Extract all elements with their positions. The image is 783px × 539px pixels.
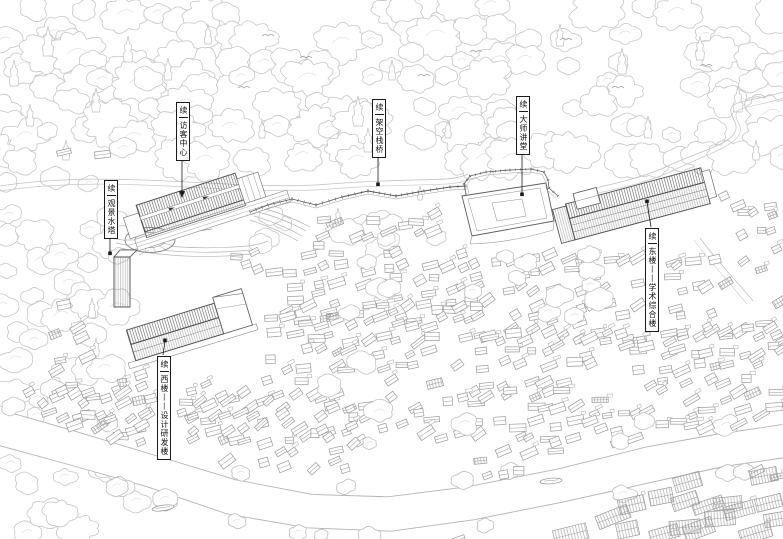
tower-shaft [114,257,130,307]
village-house [720,396,731,405]
line-art [76,379,82,382]
village-house [754,493,783,512]
village-house [766,227,776,236]
river-water [0,411,783,531]
railing-tick [465,194,468,195]
railing-tick [385,192,386,195]
tree-canopy [0,263,17,278]
line-art [218,421,222,425]
village-house [664,270,684,280]
village-house [550,423,561,432]
village-house [697,344,716,358]
village-house [631,279,645,288]
line-art [279,324,284,327]
village-house [754,261,771,274]
line-art [321,276,328,280]
line-art [564,324,571,330]
line-art [697,417,704,421]
village-house [218,453,236,469]
village-house [185,383,199,396]
railing-tick [342,195,343,198]
village-house [479,382,494,389]
village-house [509,424,526,432]
leader-dot [520,193,524,197]
line-art [307,375,312,378]
line-art [470,329,476,333]
village-house [385,264,394,272]
village-house [744,387,762,400]
village-house [367,216,380,224]
line-art [228,407,234,411]
village-house [694,358,706,368]
tree-canopy [398,42,423,62]
line-art [201,391,206,396]
village-house [565,266,579,272]
line-art [728,322,733,326]
village-house [414,228,424,237]
tree-canopy [557,57,580,74]
village-house [458,262,469,273]
village-house [685,253,705,265]
village-house [135,381,148,392]
tree-canopy [78,175,98,192]
line-art [143,364,150,369]
village-house [266,268,283,277]
village-house [315,343,327,354]
line-art [679,270,684,273]
village-house [556,324,575,340]
line-art [750,372,756,375]
tree-canopy [563,100,583,117]
line-art [451,535,466,539]
village-house [421,286,439,297]
village-house [405,350,415,359]
village-house [718,191,729,201]
line-art [497,330,502,334]
tree-canopy [662,127,680,143]
village-house [280,359,298,374]
label-text: 观景水塔 [107,199,116,235]
railing-tick [379,191,380,194]
village-house [199,375,215,388]
village-house [528,348,536,354]
village-house [275,447,287,457]
village-house [296,363,311,373]
village-house [415,296,433,310]
village-house [258,457,270,468]
village-house [241,259,252,269]
label-text: 架空栈桥 [375,118,384,154]
line-art [618,253,624,256]
village-house [422,260,439,271]
village-house [314,321,329,331]
line-art [342,272,347,276]
line-art [695,388,702,394]
village-house [371,307,392,323]
line-art [435,203,440,208]
village-house [644,380,657,391]
line-art [608,323,615,329]
village-house [561,253,577,264]
railing-tick [373,190,374,193]
village-house [455,244,470,259]
line-art [518,344,522,347]
village-house [361,333,376,347]
village-house [56,413,69,423]
line-art [623,324,629,329]
label-scenic-water-tower: 续观景水塔 [104,180,118,239]
village-house [329,251,343,257]
site-drawing-stage: 续访客中心 续架空栈桥 续大师讲堂 续观景水塔 续东楼——学术综合楼 续西楼——… [0,0,783,539]
village-house [334,259,348,269]
railing-tick [390,193,391,196]
tree-canopy [414,98,436,116]
tree-canopy [77,253,98,272]
village-house [282,417,295,429]
village-house [221,425,236,438]
village-house [231,254,243,260]
village-house [519,442,542,461]
village-house [80,410,95,419]
hill-path-edge [694,240,747,304]
label-west-building: 续西楼——设计研发楼 [157,356,171,460]
railing-tick [355,192,356,195]
tree-canopy [477,518,494,533]
tree-canopy [514,253,537,271]
label-prefix: 续 [179,106,188,118]
line-art [301,280,305,283]
line-art [387,360,394,365]
village-house [704,509,735,527]
line-art [709,416,714,420]
line-art [109,408,114,413]
line-art [423,216,429,219]
tree-canopy [362,68,382,85]
village-house [385,391,397,403]
line-art [192,396,196,399]
label-text: 访客中心 [179,121,188,157]
village-house [425,332,439,340]
village-house [742,372,756,383]
village-house [257,437,273,450]
tree-canopy [653,0,703,30]
village-house [527,414,544,426]
village-house [289,387,303,400]
tree-canopy [546,285,574,308]
tree-canopy [755,0,783,34]
tree-canopy [361,31,382,48]
village-house [602,409,615,418]
village-house [680,378,693,388]
line-art [686,360,691,364]
village-house [581,415,598,428]
village-house [344,415,363,431]
village-house [383,370,401,387]
line-art [310,317,315,320]
tree-canopy [318,374,341,397]
village-house [757,227,765,233]
village-house [499,470,509,480]
line-art [288,359,295,365]
village-house [345,319,358,331]
village-house [66,419,84,433]
line-art [29,382,34,387]
line-art [569,384,575,387]
village-house [765,399,783,412]
label-prefix: 续 [648,232,657,244]
line-art [718,358,724,362]
village-house [266,355,276,364]
village-house [314,242,325,250]
village-house [494,416,506,425]
line-art [420,314,425,317]
village-house [475,347,487,355]
line-art [193,383,197,387]
line-art [463,244,467,248]
village-house [100,393,113,404]
village-house [630,298,646,312]
tree-canopy [0,294,19,317]
label-visitor-center: 续访客中心 [176,102,190,161]
village-house [708,254,721,265]
tree-canopy [20,0,46,22]
tree-canopy [0,455,21,473]
tree-canopy [612,433,629,449]
village-house [676,311,685,319]
village-house [287,296,303,305]
village-house [676,325,692,337]
tree-canopy [232,465,250,481]
tree-canopy [569,0,625,32]
leader-dot [163,339,167,343]
village-house [295,375,312,385]
tree-canopy [208,108,254,142]
village-house [326,272,349,289]
tree-canopy [0,223,18,246]
line-art [777,239,783,244]
village-house [313,276,329,289]
village-house [678,287,688,295]
railing-tick [537,169,538,172]
village-house [659,365,672,374]
line-art [607,394,613,397]
village-house [376,360,395,373]
line-art [125,375,130,379]
line-art [393,303,399,308]
line-art [434,286,439,290]
tree-canopy [0,26,23,52]
line-art [709,344,714,348]
village-house [542,247,558,261]
railing-tick [401,193,402,196]
village-house [565,432,581,443]
village-house [748,348,766,363]
line-art [553,355,561,360]
hill-path [700,238,753,301]
village-house [451,359,464,371]
village-house [409,215,429,225]
line-art [610,409,614,412]
line-art [64,353,68,357]
village-house [681,388,704,407]
village-house [396,362,408,367]
line-art [685,325,690,329]
village-house [632,365,644,375]
village-house [312,289,326,297]
village-house [742,324,755,332]
railing-tick [304,200,305,203]
village-house [451,535,466,539]
village-house [770,239,783,254]
village-house [314,410,327,423]
conifer-tree [417,186,422,200]
village-house [738,256,750,267]
line-art [461,277,468,282]
tree-canopy [435,67,458,86]
village-house [720,345,738,356]
village-house [329,446,343,455]
village-house [41,408,57,418]
village-house [698,404,718,414]
tree-canopy [289,525,306,539]
tree-canopy [42,243,78,270]
village-house [552,523,589,539]
village-house [307,462,320,475]
tree-canopy [483,14,516,42]
tree-canopy [100,0,147,33]
village-house [67,387,82,401]
village-house [618,411,629,416]
conifer-tree [123,36,133,62]
village-house [94,150,110,159]
village-house [340,463,351,473]
tree-canopy [506,45,546,75]
village-house [426,378,443,390]
tree-canopy [451,471,473,489]
label-prefix: 续 [519,100,528,112]
village-house [548,397,572,415]
village-house [396,258,409,270]
line-art [392,370,397,375]
line-art [400,270,406,273]
village-house [471,310,485,321]
village-house [763,510,783,528]
village-house [514,466,524,474]
village-house [474,457,487,464]
tree-canopy [72,0,95,21]
line-art [356,333,361,337]
tree-canopy [0,347,32,372]
village-house [567,357,583,366]
village-house [736,229,748,241]
village-house [509,309,521,321]
village-house [476,365,488,373]
railing-tick [361,191,362,194]
village-house [470,272,483,282]
village-house [468,258,480,270]
tree-canopy [632,0,656,18]
leader-dot [376,183,380,187]
village-house [734,403,752,415]
label-prefix: 续 [375,103,384,115]
tree-canopy [53,469,78,486]
line-art [603,325,606,328]
village-house [663,336,677,347]
label-east-building: 续东楼——学术综合楼 [645,228,659,332]
label-elevated-walkway: 续架空栈桥 [372,99,386,158]
village-house [539,355,563,372]
village-house [443,397,453,406]
line-art [772,295,783,309]
village-house [438,255,460,273]
village-house [324,331,333,339]
railing-tick [348,194,349,197]
line-art [389,327,395,331]
conifer-tree [617,48,627,74]
village-house [446,299,456,306]
village-house [414,408,424,417]
village-house [237,422,249,434]
village-house [283,269,297,277]
line-art [763,510,783,528]
village-house [318,260,329,271]
label-prefix: 续 [107,184,116,196]
master-lecture-hall-building [462,183,554,244]
tree-canopy [397,65,434,94]
village-house [286,442,303,458]
railing-tick [298,199,299,202]
tree-canopy [15,220,54,251]
railing-tick [310,202,311,205]
line-art [764,261,769,265]
village-house [261,375,272,385]
tree-canopy [508,270,525,285]
village-house [594,423,608,434]
tree-canopy [233,148,271,176]
line-art [437,220,443,225]
line-art [441,302,445,305]
tree-canopy [337,479,356,495]
line-art [562,397,569,402]
line-art [416,317,421,321]
line-art [641,491,645,495]
line-art [581,411,586,415]
line-art [382,346,387,350]
site-axonometric-drawing [0,0,783,539]
village-house [429,274,439,281]
village-house [482,471,492,480]
village-house [287,280,305,291]
village-house [541,325,557,339]
village-house [287,329,305,338]
line-art [207,375,213,380]
lecture-roof [462,183,554,236]
village-house [407,361,418,370]
label-prefix: 续 [160,360,169,372]
railing-tick [407,192,408,195]
village-house [600,337,612,345]
tree-canopy [0,205,21,224]
line-art [407,294,412,299]
line-art [589,347,594,351]
village-house [527,285,540,297]
leader-dot [645,200,649,204]
village-house [378,423,388,433]
label-text: 西楼——设计研发楼 [160,375,169,456]
line-art [734,346,739,349]
line-art [679,253,686,258]
village-house [125,413,137,424]
